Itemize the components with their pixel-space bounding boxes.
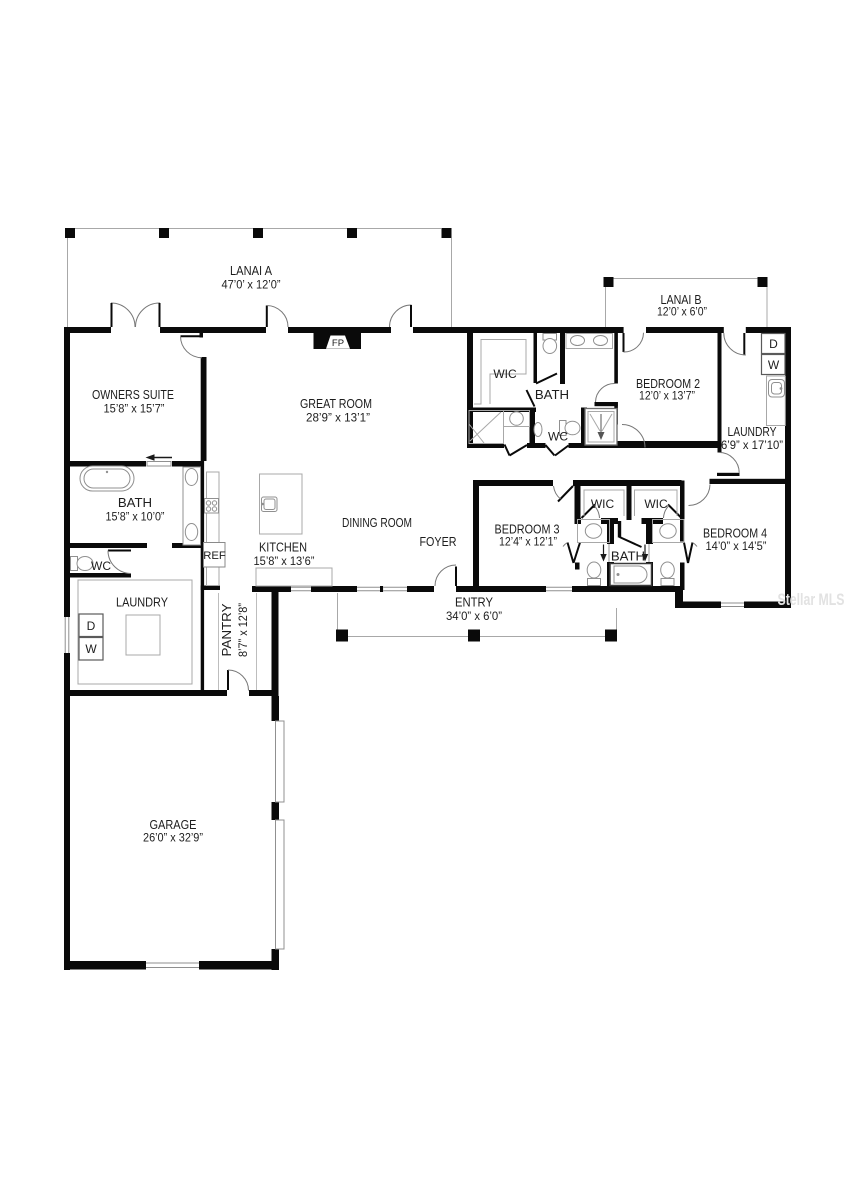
svg-text:BATH: BATH <box>611 549 645 564</box>
svg-text:PANTRY: PANTRY <box>219 603 234 656</box>
svg-text:47’0’ x 12’0”: 47’0’ x 12’0” <box>222 278 281 292</box>
svg-text:12’4” x 12’1”: 12’4” x 12’1” <box>499 535 557 549</box>
svg-text:KITCHEN: KITCHEN <box>259 540 307 555</box>
svg-text:Stellar MLS: Stellar MLS <box>778 590 845 609</box>
svg-text:W: W <box>768 358 780 372</box>
svg-text:26’0” x 32’9”: 26’0” x 32’9” <box>143 831 203 845</box>
svg-text:8’7” x 12’8”: 8’7” x 12’8” <box>236 603 250 657</box>
svg-text:WIC: WIC <box>493 367 517 381</box>
svg-text:15’8” x 10’0”: 15’8” x 10’0” <box>106 510 165 524</box>
svg-text:REF: REF <box>203 550 226 562</box>
svg-text:BATH: BATH <box>118 495 152 510</box>
svg-text:WIC: WIC <box>591 497 615 511</box>
svg-text:GREAT ROOM: GREAT ROOM <box>300 396 372 411</box>
svg-text:WIC: WIC <box>644 497 668 511</box>
svg-text:W: W <box>85 642 97 656</box>
svg-text:D: D <box>769 337 778 351</box>
svg-text:FP: FP <box>332 338 344 349</box>
svg-text:OWNERS SUITE: OWNERS SUITE <box>92 387 174 402</box>
svg-text:LAUNDRY: LAUNDRY <box>728 424 777 439</box>
svg-text:12’0’ x 6’0”: 12’0’ x 6’0” <box>657 305 707 319</box>
svg-text:BATH: BATH <box>535 387 569 402</box>
svg-text:DINING ROOM: DINING ROOM <box>342 515 412 530</box>
svg-text:15’8” x 13’6”: 15’8” x 13’6” <box>254 554 315 568</box>
svg-text:14’0” x 14’5”: 14’0” x 14’5” <box>706 539 767 553</box>
svg-text:15’8” x 15’7”: 15’8” x 15’7” <box>104 402 165 416</box>
svg-text:LANAI A: LANAI A <box>230 263 272 278</box>
svg-text:28’9” x 13’1”: 28’9” x 13’1” <box>306 411 370 425</box>
svg-text:6’9” x 17’10”: 6’9” x 17’10” <box>721 438 783 452</box>
svg-text:34’0” x 6’0”: 34’0” x 6’0” <box>446 609 502 623</box>
svg-text:D: D <box>87 619 96 633</box>
svg-text:12’0’ x 13’7”: 12’0’ x 13’7” <box>639 389 695 403</box>
svg-text:FOYER: FOYER <box>420 534 457 549</box>
svg-text:ENTRY: ENTRY <box>455 595 493 610</box>
svg-text:WC: WC <box>91 559 111 573</box>
svg-text:WC: WC <box>548 430 568 444</box>
svg-text:LAUNDRY: LAUNDRY <box>116 595 168 610</box>
